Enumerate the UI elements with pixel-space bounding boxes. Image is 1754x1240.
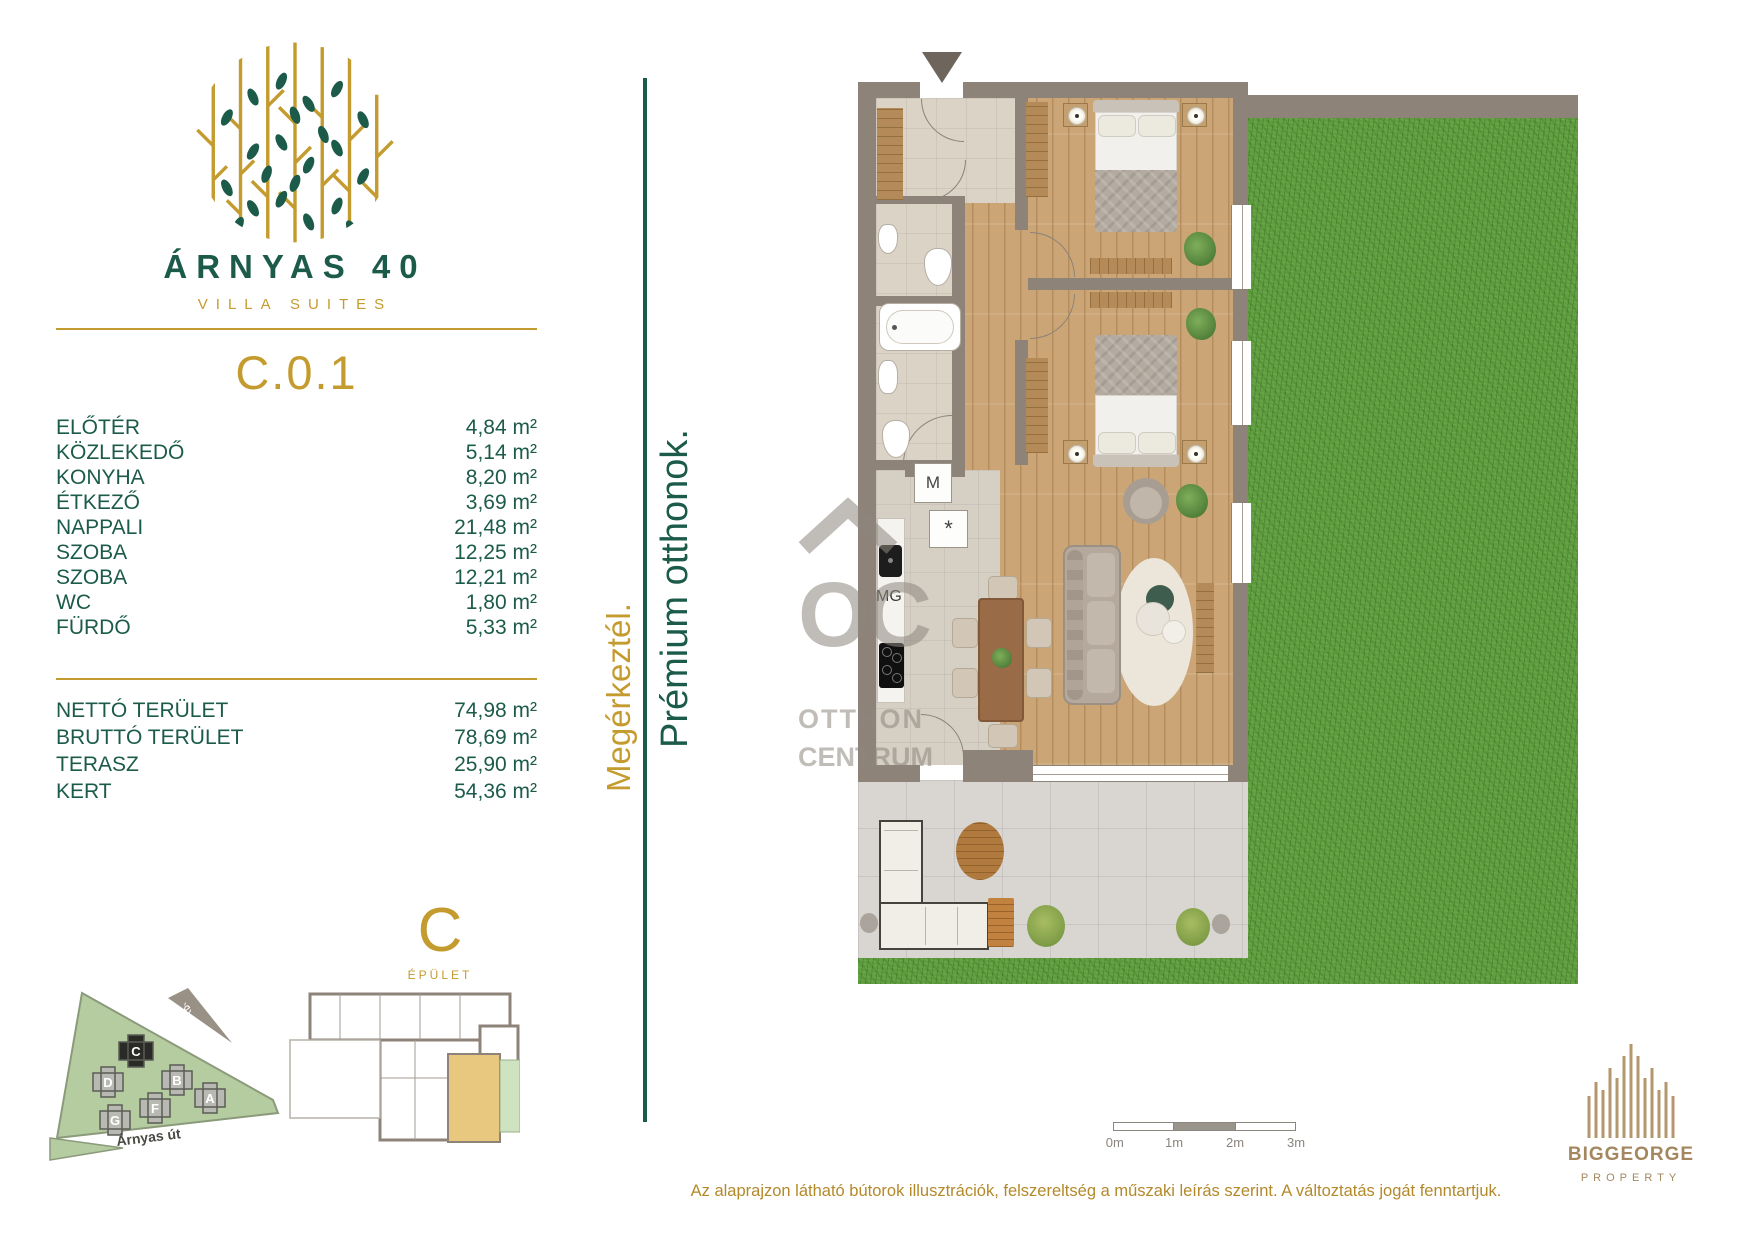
window-bedroom2: [1231, 341, 1252, 425]
dining-chair: [1026, 668, 1052, 698]
building-letter: C: [370, 895, 510, 966]
brand-title: ÁRNYAS 40: [90, 248, 500, 286]
total-row: BRUTTÓ TERÜLET78,69 m²: [56, 724, 537, 751]
tagline-gold: Megérkeztél.: [600, 603, 638, 792]
scale-label: 3m: [1287, 1135, 1305, 1150]
room-area: 4,84 m²: [466, 415, 537, 440]
nightstand: [1182, 440, 1207, 464]
brand-subtitle: VILLA SUITES: [90, 296, 500, 313]
highlighted-unit: [448, 1054, 500, 1142]
bedroom1-wardrobe: [1026, 102, 1048, 197]
dining-chair: [1026, 618, 1052, 648]
scale-label: 2m: [1226, 1135, 1244, 1150]
site-building-g: G: [110, 1113, 120, 1128]
room-row: KONYHA8,20 m²: [56, 465, 537, 490]
otthon-centrum-watermark-icon: OC OTTHON CENTRUM: [796, 486, 946, 796]
room-area: 3,69 m²: [466, 490, 537, 515]
tv-sideboard: [1196, 583, 1214, 673]
garden-grass-strip: [858, 958, 1248, 984]
divider-totals: [56, 678, 537, 680]
bathroom-sink: [878, 360, 898, 394]
room-name: NAPPALI: [56, 515, 143, 540]
entrance-arrow-icon: [922, 52, 962, 83]
dining-chair: [952, 618, 978, 648]
room-area: 8,20 m²: [466, 465, 537, 490]
room-area: 5,14 m²: [466, 440, 537, 465]
wall-right: [1233, 98, 1248, 780]
room-area: 5,33 m²: [466, 615, 537, 640]
bathtub: [879, 303, 961, 351]
room-row: NAPPALI21,48 m²: [56, 515, 537, 540]
dining-chair: [988, 576, 1018, 600]
terrace-stone: [1212, 914, 1230, 934]
watermark-initials: OC: [798, 564, 930, 666]
room-row: KÖZLEKEDŐ5,14 m²: [56, 440, 537, 465]
room-row: FÜRDŐ5,33 m²: [56, 615, 537, 640]
outdoor-sofa-horizontal: [879, 902, 989, 950]
room-name: SZOBA: [56, 565, 127, 590]
site-building-d: D: [103, 1075, 112, 1090]
bed-double-2: [1093, 335, 1179, 467]
biggeorge-tree-icon: [1581, 1038, 1681, 1144]
unit-code: C.0.1: [56, 345, 537, 400]
bedroom2-sideboard: [1090, 292, 1172, 308]
divider-top: [56, 328, 537, 330]
brand-block: ÁRNYAS 40 VILLA SUITES: [90, 38, 500, 313]
room-name: KONYHA: [56, 465, 145, 490]
room-row: SZOBA12,25 m²: [56, 540, 537, 565]
bed-double-1: [1093, 100, 1179, 232]
scale-label: 0m: [1106, 1135, 1124, 1150]
building-key-plan: [285, 988, 520, 1146]
disclaimer-text: Az alaprajzon látható bútorok illusztrác…: [596, 1182, 1596, 1201]
nightstand: [1182, 103, 1207, 127]
table-plant: [992, 648, 1012, 668]
room-row: ÉTKEZŐ3,69 m²: [56, 490, 537, 515]
entry-wardrobe: [877, 108, 903, 200]
total-area: 54,36 m²: [454, 778, 537, 805]
total-name: TERASZ: [56, 751, 139, 778]
nightstand: [1063, 103, 1088, 127]
room-row: SZOBA12,21 m²: [56, 565, 537, 590]
room-row: ELŐTÉR4,84 m²: [56, 415, 537, 440]
site-building-c: C: [131, 1044, 141, 1059]
wall-bottom-right: [1228, 765, 1248, 782]
room-area: 12,25 m²: [454, 540, 537, 565]
room-list: ELŐTÉR4,84 m² KÖZLEKEDŐ5,14 m² KONYHA8,2…: [56, 415, 537, 640]
bedroom2-wardrobe: [1026, 358, 1048, 453]
window-bedroom1: [1231, 205, 1252, 289]
nightstand: [1063, 440, 1088, 464]
total-area: 25,90 m²: [454, 751, 537, 778]
total-area: 78,69 m²: [454, 724, 537, 751]
dining-chair: [988, 724, 1018, 748]
wall-bottom-block: [963, 750, 1033, 782]
site-building-b: B: [172, 1073, 181, 1088]
tagline-green: Prémium otthonok.: [654, 429, 697, 748]
window-terrace: [1033, 765, 1228, 782]
room-name: ÉTKEZŐ: [56, 490, 140, 515]
wall-top-right: [963, 82, 1248, 98]
site-map: é C D B A F G Árnyas út: [45, 980, 295, 1165]
coffee-table-small: [1162, 620, 1186, 644]
window-living-side: [1231, 503, 1252, 583]
room-row: WC1,80 m²: [56, 590, 537, 615]
total-name: NETTÓ TERÜLET: [56, 697, 228, 724]
living-plant: [1176, 484, 1208, 518]
armchair: [1123, 478, 1169, 524]
site-building-f: F: [151, 1101, 159, 1116]
total-name: BRUTTÓ TERÜLET: [56, 724, 243, 751]
compass-arrow-icon: [168, 988, 232, 1043]
publisher-logo: BIGGEORGE PROPERTY: [1546, 1038, 1716, 1184]
dining-chair: [952, 668, 978, 698]
terrace-stone: [860, 913, 878, 933]
publisher-name: BIGGEORGE: [1546, 1144, 1716, 1166]
tree-logo-icon: [180, 38, 410, 248]
total-name: KERT: [56, 778, 112, 805]
total-row: KERT54,36 m²: [56, 778, 537, 805]
bedroom2-plant: [1186, 308, 1216, 340]
total-area: 74,98 m²: [454, 697, 537, 724]
scale-label: 1m: [1165, 1135, 1183, 1150]
room-area: 12,21 m²: [454, 565, 537, 590]
room-name: FÜRDŐ: [56, 615, 131, 640]
garden-grass: [1248, 118, 1578, 984]
terrace-bush: [1176, 908, 1210, 946]
totals-list: NETTÓ TERÜLET74,98 m² BRUTTÓ TERÜLET78,6…: [56, 697, 537, 805]
building-label: ÉPÜLET: [370, 968, 510, 982]
total-row: NETTÓ TERÜLET74,98 m²: [56, 697, 537, 724]
publisher-division: PROPERTY: [1546, 1172, 1716, 1184]
total-row: TERASZ25,90 m²: [56, 751, 537, 778]
watermark-line1: OTTHON: [798, 704, 924, 734]
terrace-bush: [1027, 905, 1065, 947]
wc-sink: [878, 224, 898, 254]
room-area: 21,48 m²: [454, 515, 537, 540]
room-name: SZOBA: [56, 540, 127, 565]
bedroom1-plant: [1184, 232, 1216, 266]
site-building-a: A: [205, 1091, 215, 1106]
watermark-line2: CENTRUM: [798, 742, 933, 772]
room-name: WC: [56, 590, 91, 615]
sofa: [1063, 545, 1121, 705]
garden-top-wall: [1240, 95, 1578, 118]
scale-bar: 0m 1m 2m 3m: [1113, 1122, 1303, 1153]
room-name: ELŐTÉR: [56, 415, 140, 440]
tagline-divider: [643, 78, 647, 1122]
wall-bedroom-divider: [1028, 278, 1233, 290]
floorplan-sheet: ÁRNYAS 40 VILLA SUITES C.0.1 ELŐTÉR4,84 …: [0, 0, 1754, 1240]
bedroom1-sideboard: [1090, 258, 1172, 274]
room-area: 1,80 m²: [466, 590, 537, 615]
outdoor-side-table: [988, 898, 1014, 947]
building-key-header: C ÉPÜLET: [370, 895, 510, 982]
room-name: KÖZLEKEDŐ: [56, 440, 184, 465]
outdoor-round-table: [956, 822, 1004, 880]
